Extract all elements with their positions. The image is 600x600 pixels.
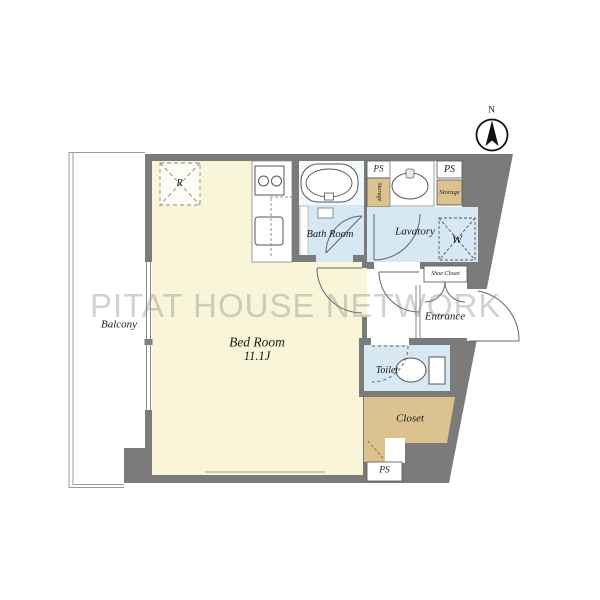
entrance-label: Entrance — [425, 312, 465, 323]
ps-label-bottom: PS — [379, 466, 390, 476]
wall-stub — [353, 255, 364, 262]
kitchen-sink — [255, 217, 283, 245]
north-compass — [477, 120, 508, 151]
ps-label-top-right: PS — [444, 165, 455, 175]
closet-notch — [385, 438, 405, 463]
window-mullion — [145, 339, 153, 345]
lavatory-label: Lavatory — [395, 227, 435, 238]
washer-label: W — [452, 233, 462, 245]
wall-stub — [359, 391, 455, 397]
bathtub-faucet — [325, 193, 334, 200]
bedroom-label: Bed Room — [229, 335, 285, 349]
storage-label-right: Storage — [439, 189, 459, 196]
balcony-label: Balcony — [101, 320, 137, 331]
refrigerator-label: R — [176, 179, 182, 189]
ps-label-top-left: PS — [374, 165, 384, 174]
shoe-closet-label: Shoe Closet — [431, 271, 460, 277]
storage-label-left: Storage — [376, 183, 382, 202]
bedroom-area-label: 11.1J — [244, 350, 271, 363]
wall-stub — [299, 255, 316, 262]
north-label: N — [488, 106, 495, 116]
floor-plan-canvas: PITAT HOUSE NETWORK Balcony Bed Room 11.… — [0, 0, 600, 600]
toilet-bowl — [396, 358, 426, 382]
closet-floor-ext — [364, 443, 385, 462]
toilet-label: Toilet — [376, 366, 398, 376]
closet-label: Closet — [396, 414, 424, 425]
toilet-tank — [429, 357, 445, 384]
lavatory-door-opening — [374, 262, 420, 269]
kitchen-bath-wall — [292, 161, 299, 262]
bathroom-label: Bath Room — [307, 230, 354, 241]
stove — [255, 166, 284, 195]
toilet-door-opening — [371, 338, 409, 345]
bath-stool — [318, 208, 333, 218]
sink-tap — [406, 169, 414, 178]
wall-stub — [359, 338, 364, 395]
wall-stub — [145, 410, 152, 448]
